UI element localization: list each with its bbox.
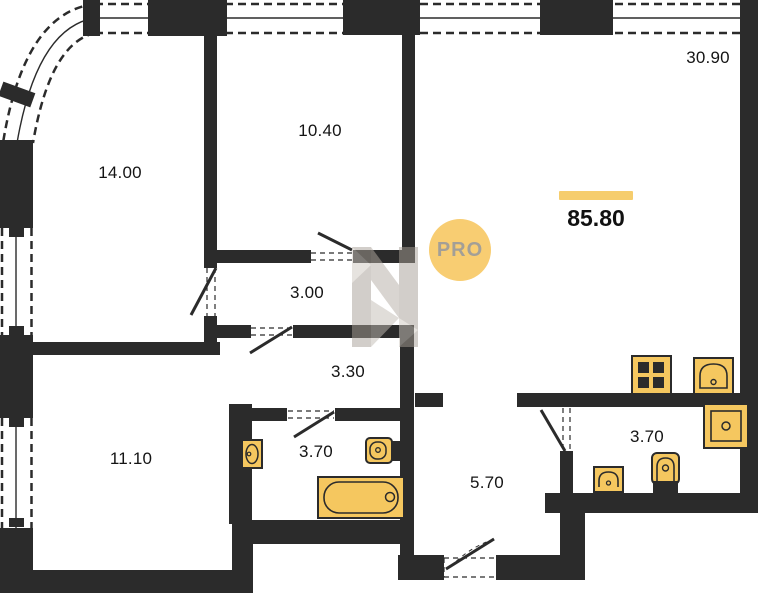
door	[191, 268, 216, 316]
room-label-living-kitchen: 30.90	[686, 48, 730, 68]
sink-icon	[242, 440, 262, 468]
wall	[229, 408, 287, 421]
room-label-bedroom-3: 11.10	[110, 449, 152, 469]
total-area-accent-bar	[559, 191, 633, 200]
room-label-bathroom-1: 3.70	[299, 442, 333, 462]
window-cap	[9, 326, 24, 335]
room-label-corridor: 3.00	[290, 283, 324, 303]
total-area-value: 85.80	[552, 205, 640, 232]
pro-badge: PRO	[429, 219, 491, 281]
wall	[560, 451, 573, 526]
room-label-bedroom-2: 10.40	[298, 121, 342, 141]
wall	[0, 570, 253, 593]
wall	[335, 408, 412, 421]
door	[541, 408, 570, 451]
wall	[343, 0, 420, 35]
wall	[148, 0, 227, 36]
wall	[232, 520, 412, 544]
room-label-bedroom-1: 14.00	[98, 163, 142, 183]
bathtub-icon	[318, 477, 404, 518]
shower-icon	[704, 404, 748, 448]
stove-icon	[632, 356, 671, 394]
room-label-hallway: 3.30	[331, 362, 365, 382]
door	[288, 411, 334, 437]
wall	[0, 342, 220, 355]
wall	[204, 35, 217, 268]
window-cap	[9, 418, 24, 427]
window-cap	[9, 228, 24, 237]
wall	[204, 325, 251, 338]
wall	[0, 140, 33, 228]
wall	[540, 0, 613, 35]
wall	[402, 35, 415, 263]
floor-plan-drawing	[0, 0, 773, 600]
floor-plan: 30.90 14.00 10.40 3.00 3.30 11.10 3.70 5…	[0, 0, 773, 600]
entrance-door	[444, 539, 495, 577]
window-cap	[9, 518, 24, 527]
wall	[83, 0, 100, 36]
curved-window	[3, 4, 95, 143]
toilet-icon	[652, 453, 679, 493]
wall	[415, 393, 443, 407]
wall	[400, 337, 414, 557]
wall	[545, 493, 758, 513]
wall	[398, 555, 444, 580]
room-label-entry-hall: 5.70	[470, 473, 504, 493]
door	[250, 327, 292, 353]
wall	[204, 250, 311, 263]
room-label-bathroom-2: 3.70	[630, 427, 664, 447]
door	[311, 233, 352, 260]
kitchen-sink-icon	[694, 358, 733, 394]
toilet-icon	[366, 438, 402, 463]
sink-icon	[594, 467, 623, 492]
pro-badge-label: PRO	[437, 239, 483, 262]
